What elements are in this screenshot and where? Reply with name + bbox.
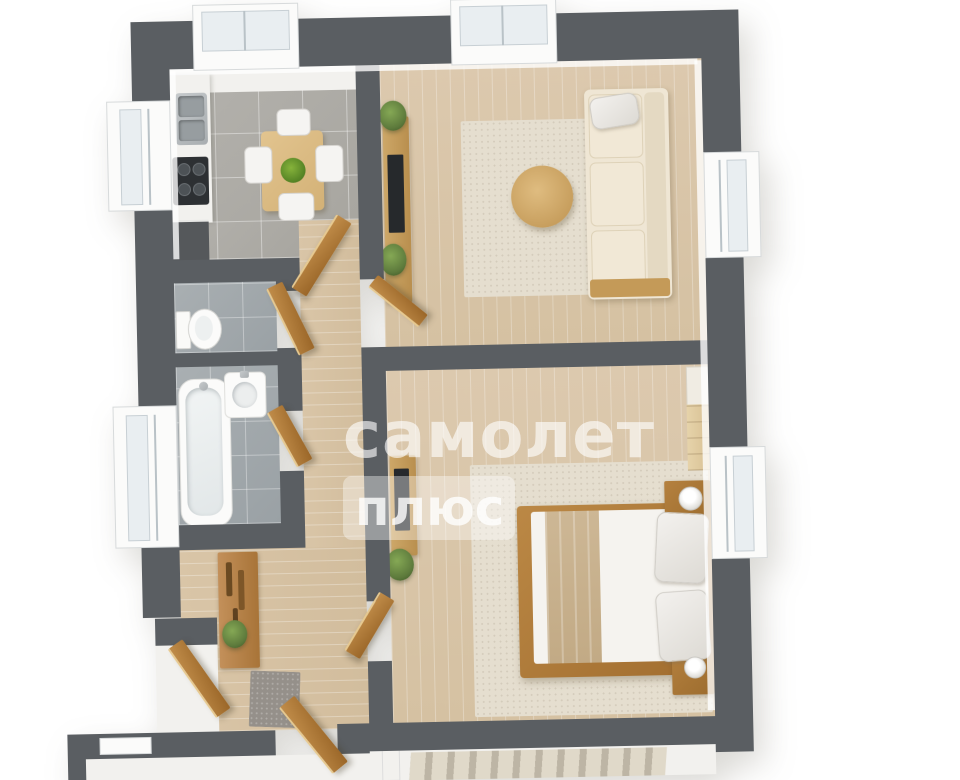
window-mullion — [147, 109, 151, 205]
coat-rack-item — [226, 562, 233, 596]
sofa-backrest — [644, 92, 668, 294]
window-kitchen-left — [106, 100, 172, 211]
window-glass — [733, 455, 755, 551]
wall-hall-left-seg2 — [277, 348, 302, 411]
floorplan-screenshot: самолет плюс — [0, 0, 960, 780]
watermark: самолет плюс — [343, 404, 655, 540]
window-kitchen-top — [192, 3, 299, 71]
wall-vestibule — [155, 618, 218, 646]
watermark-badge: плюс — [343, 476, 515, 540]
wall-left-lower — [141, 547, 180, 618]
toilet-seat — [195, 316, 214, 341]
coat-rack-item — [238, 570, 245, 610]
watermark-brand: самолет — [343, 404, 655, 468]
burner — [177, 163, 190, 176]
entry-wall-window — [99, 737, 151, 755]
dining-chair-top — [276, 108, 311, 136]
watermark-suffix: плюс — [343, 476, 504, 540]
window-glass — [726, 159, 748, 251]
wall-left-upper — [130, 21, 170, 101]
sofa-wood-base — [590, 278, 670, 298]
bathtub-basin — [185, 387, 224, 516]
bed-pillow-top — [654, 512, 709, 584]
tv — [387, 155, 405, 233]
bed-pillow-bottom — [655, 589, 712, 663]
wall-left-mid — [134, 210, 176, 406]
wall-kitchen-living-divider — [355, 65, 383, 279]
staircase — [409, 747, 667, 780]
wall-entry-stub — [337, 728, 370, 754]
dining-chair-right — [315, 145, 344, 183]
window-mullion — [725, 456, 729, 552]
sink-basin-top — [178, 96, 204, 118]
dining-chair-bottom — [278, 192, 315, 221]
wall-entry-left — [67, 734, 86, 780]
hall-console — [218, 552, 260, 669]
burner — [192, 163, 205, 176]
dining-chair-left — [244, 146, 273, 184]
window-mullion — [718, 160, 722, 252]
sink-basin — [232, 382, 258, 409]
apartment-plan — [0, 0, 960, 780]
wall-right-b — [706, 257, 748, 449]
burner — [193, 183, 206, 196]
wall-wc-bath-divider — [137, 351, 277, 368]
wall-top-b — [298, 15, 451, 66]
bathroom-sink — [224, 371, 267, 418]
window-glass — [119, 109, 143, 205]
sink-basin-bottom — [179, 120, 205, 142]
sofa-cushion — [589, 161, 644, 226]
burner — [178, 183, 191, 196]
window-bedroom-right — [709, 446, 767, 559]
window-glass — [126, 415, 151, 541]
sink-faucet — [240, 371, 249, 378]
window-bathroom-left — [112, 405, 179, 548]
sofa — [584, 88, 672, 300]
wall-right-a — [700, 9, 741, 154]
kitchen-sink — [175, 93, 208, 146]
window-living-top — [450, 0, 557, 65]
window-mullion — [154, 415, 159, 541]
window-living-right — [703, 151, 761, 258]
